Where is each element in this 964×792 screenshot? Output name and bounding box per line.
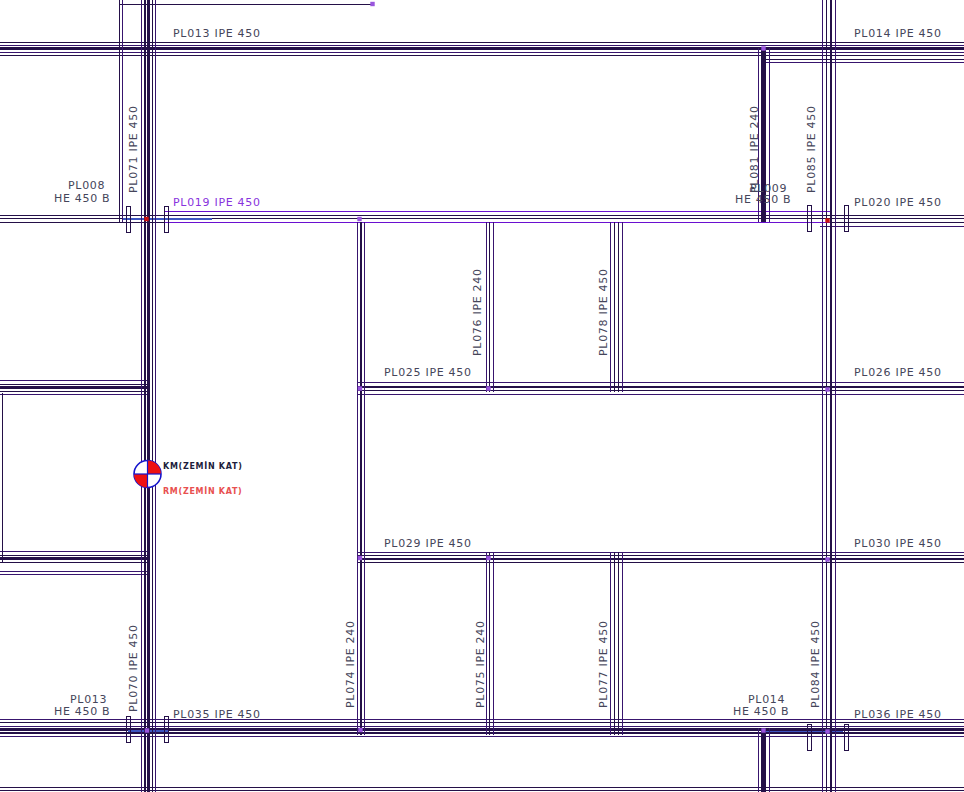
label-pl014-ipe-450-top[interactable]: PL014 IPE 450 — [854, 27, 942, 40]
label-pl035-ipe-450[interactable]: PL035 IPE 450 — [173, 708, 261, 721]
label-pl008-name[interactable]: PL008 — [68, 179, 105, 192]
node-marker — [486, 556, 490, 560]
label-pl076-ipe-240[interactable]: PL076 IPE 240 — [471, 268, 484, 356]
node-marker — [825, 557, 829, 561]
label-pl014-section-bottom[interactable]: HE 450 B — [733, 705, 789, 718]
label-pl030-ipe-450[interactable]: PL030 IPE 450 — [854, 537, 942, 550]
label-pl036-ipe-450[interactable]: PL036 IPE 450 — [854, 708, 942, 721]
label-pl085-ipe-450[interactable]: PL085 IPE 450 — [805, 105, 818, 193]
node-marker — [825, 729, 829, 733]
node-marker — [825, 387, 829, 391]
label-pl074-ipe-240[interactable]: PL074 IPE 240 — [344, 620, 357, 708]
label-pl009-section[interactable]: HE 450 B — [735, 193, 791, 206]
node-marker — [144, 217, 148, 221]
label-pl020-ipe-450[interactable]: PL020 IPE 450 — [854, 196, 942, 209]
node-marker — [358, 386, 362, 390]
label-pl025-ipe-450[interactable]: PL025 IPE 450 — [384, 366, 472, 379]
label-pl084-ipe-450[interactable]: PL084 IPE 450 — [809, 620, 822, 708]
label-pl013-ipe-450-top[interactable]: PL013 IPE 450 — [173, 27, 261, 40]
label-pl070-ipe-450[interactable]: PL070 IPE 450 — [127, 624, 140, 712]
label-pl075-ipe-240[interactable]: PL075 IPE 240 — [474, 620, 487, 708]
floor-plan-canvas[interactable]: PL013 IPE 450PL014 IPE 450PL008HE 450 BP… — [0, 0, 964, 792]
node-marker — [357, 217, 361, 221]
label-pl019-ipe-450[interactable]: PL019 IPE 450 — [173, 196, 261, 209]
node-marker — [145, 728, 149, 732]
label-km-level-label[interactable]: KM(ZEMİN KAT) — [163, 461, 242, 471]
node-marker — [358, 728, 362, 732]
node-marker — [370, 2, 374, 6]
node-marker — [358, 556, 362, 560]
label-pl008-section[interactable]: HE 450 B — [54, 192, 110, 205]
label-pl029-ipe-450[interactable]: PL029 IPE 450 — [384, 537, 472, 550]
label-pl081-ipe-240[interactable]: PL081 IPE 240 — [748, 105, 761, 193]
label-pl077-ipe-450[interactable]: PL077 IPE 450 — [597, 620, 610, 708]
label-pl013-section-bottom[interactable]: HE 450 B — [54, 705, 110, 718]
node-marker — [825, 218, 829, 222]
node-marker — [486, 386, 490, 390]
label-pl071-ipe-450[interactable]: PL071 IPE 450 — [127, 105, 140, 193]
level-marker-group — [134, 461, 161, 488]
label-rm-level-label[interactable]: RM(ZEMİN KAT) — [163, 486, 242, 496]
label-pl026-ipe-450[interactable]: PL026 IPE 450 — [854, 366, 942, 379]
node-marker — [761, 46, 765, 50]
label-pl078-ipe-450[interactable]: PL078 IPE 450 — [597, 268, 610, 356]
node-marker — [761, 728, 765, 732]
